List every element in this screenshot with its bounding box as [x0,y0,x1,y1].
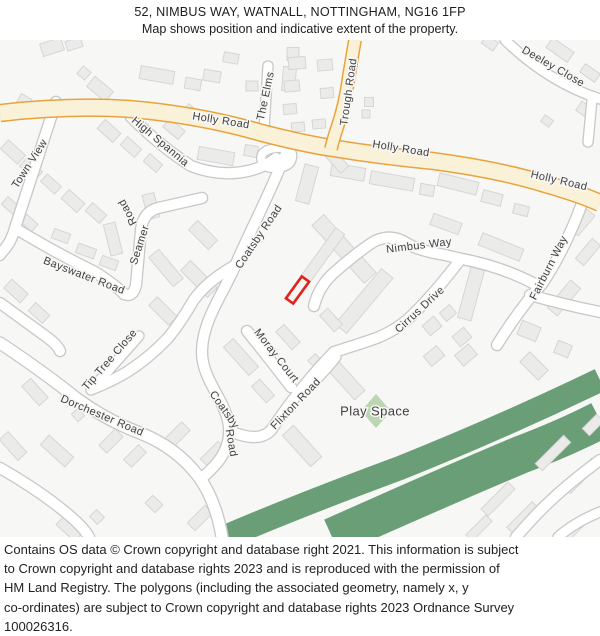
copyright-line-1: Contains OS data © Crown copyright and d… [4,540,596,559]
road-label: Dorchester Road [59,393,146,439]
building [312,119,326,129]
building [520,352,548,380]
building [197,146,235,165]
building [40,435,73,467]
building [41,174,62,194]
building [149,249,183,286]
building [481,190,503,206]
building [189,221,218,250]
building [61,190,85,213]
road-label: Road [116,197,140,227]
building [365,98,374,107]
building [77,66,91,80]
road-label: The Elms [255,70,277,121]
header: 52, NIMBUS WAY, WATNALL, NOTTINGHAM, NG1… [0,0,600,40]
road-label: Play Space [340,403,410,418]
building [455,344,478,366]
page-title: 52, NIMBUS WAY, WATNALL, NOTTINGHAM, NG1… [0,0,600,19]
building [541,115,554,127]
building [124,445,147,468]
building [139,66,175,85]
building [554,340,573,358]
building [422,316,442,336]
building [143,154,162,173]
deeley-spur [588,100,592,142]
building [282,425,321,466]
copyright-line-4: co-ordinates) are subject to Crown copyr… [4,598,596,617]
building [203,69,222,83]
map-canvas: Holly RoadHolly RoadHolly RoadTrough Roa… [0,40,600,537]
building [0,140,25,164]
building [75,243,96,259]
building [478,233,524,262]
building [65,40,83,51]
building [513,203,530,216]
map-container: Holly RoadHolly RoadHolly RoadTrough Roa… [0,40,600,537]
building [22,378,48,405]
building [51,228,70,243]
building [288,56,306,69]
building [295,164,318,204]
building [145,495,163,513]
building [103,222,122,256]
building [284,80,300,92]
page-subtitle: Map shows position and indicative extent… [0,19,600,36]
copyright-line-5: 100026316. [4,617,596,636]
building [99,429,123,453]
building [252,379,275,403]
building [184,77,202,91]
building [120,137,141,158]
copyright-line-3: HM Land Registry. The polygons (includin… [4,578,596,597]
building [291,122,305,132]
building [439,305,456,322]
copyright-footer: Contains OS data © Crown copyright and d… [0,537,600,636]
building [466,515,492,537]
building [362,110,370,118]
building [283,103,297,114]
building [481,40,498,51]
building [149,297,177,325]
building [423,346,444,367]
building [419,183,435,196]
copyright-line-2: to Crown copyright and database rights 2… [4,559,596,578]
building [458,267,485,321]
building [4,279,28,303]
building [517,320,541,341]
building [369,171,415,191]
building [97,120,121,143]
building [223,52,240,64]
building [90,510,105,525]
building [40,40,65,57]
building [87,76,114,101]
building [317,59,333,71]
building [320,87,334,98]
building [276,324,300,349]
building [246,81,258,91]
road-label: Seamer [128,224,152,267]
property-plot-outline [286,276,309,303]
page: { "header": { "title": "52, NIMBUS WAY, … [0,0,600,625]
building [0,432,27,461]
building [575,239,600,266]
building [430,213,462,235]
building [85,203,106,224]
building [320,308,343,332]
building [99,255,118,270]
